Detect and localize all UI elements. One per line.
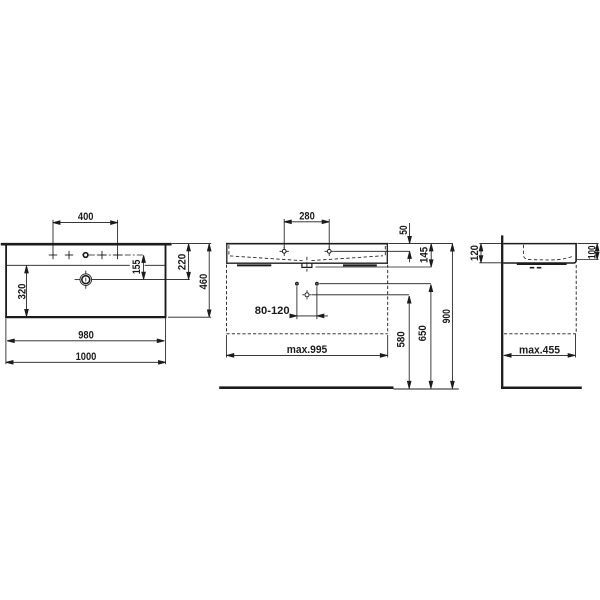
svg-text:1000: 1000 [76, 351, 97, 363]
svg-text:280: 280 [299, 211, 315, 223]
svg-text:980: 980 [78, 329, 94, 341]
svg-text:650: 650 [417, 325, 429, 341]
svg-text:155: 155 [131, 260, 143, 275]
svg-text:80-120: 80-120 [255, 305, 290, 317]
svg-text:120: 120 [469, 245, 481, 261]
svg-text:400: 400 [78, 211, 94, 223]
svg-text:220: 220 [177, 254, 189, 271]
svg-text:max.995: max.995 [287, 344, 328, 356]
svg-text:900: 900 [441, 309, 453, 323]
svg-text:50: 50 [398, 225, 410, 234]
svg-text:145: 145 [419, 247, 431, 263]
svg-text:max.455: max.455 [519, 345, 560, 357]
svg-text:580: 580 [396, 331, 408, 347]
svg-text:460: 460 [198, 274, 210, 290]
svg-text:320: 320 [17, 284, 29, 300]
svg-text:100: 100 [587, 245, 599, 259]
